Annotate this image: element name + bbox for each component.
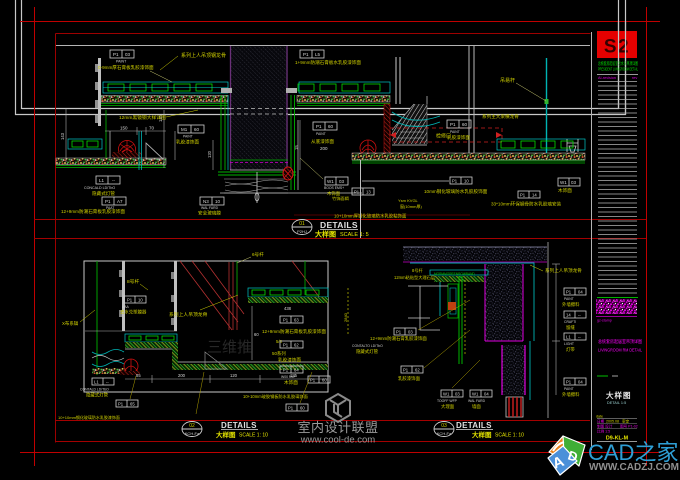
svg-text:gz-stamp: gz-stamp: [597, 319, 612, 323]
svg-text:P1: P1: [316, 124, 322, 129]
svg-text:1+9mm防潮石膏板水乳胶漆饰面: 1+9mm防潮石膏板水乳胶漆饰面: [295, 59, 361, 66]
svg-text:04: 04: [578, 380, 583, 385]
svg-text:A7: A7: [117, 199, 123, 204]
svg-text:438: 438: [284, 306, 292, 311]
svg-text:--: --: [112, 178, 115, 183]
svg-text:WAL FARD: WAL FARD: [201, 206, 219, 210]
svg-text:BOOS EMS+: BOOS EMS+: [324, 186, 344, 190]
svg-text:S2: S2: [604, 37, 630, 58]
svg-text:大样图: 大样图: [606, 390, 632, 400]
svg-text:竹饰面辑: 竹饰面辑: [332, 195, 349, 202]
svg-text:墙面: 墙面: [472, 403, 481, 410]
svg-text:TOOFF WFP: TOOFF WFP: [437, 399, 458, 403]
svg-text:03: 03: [441, 423, 447, 429]
svg-text:DETAILS: DETAILS: [320, 220, 358, 230]
svg-text:DETAILS: DETAILS: [221, 421, 257, 430]
svg-text:04: 04: [484, 392, 489, 397]
svg-text:CONTALTO LD/TbO: CONTALTO LD/TbO: [352, 344, 383, 348]
svg-text:04: 04: [578, 290, 583, 295]
svg-text:窗(10mm厚): 窗(10mm厚): [400, 203, 422, 209]
svg-text:审定: 审定: [622, 419, 630, 424]
svg-text:03: 03: [125, 52, 131, 57]
svg-text:W00 Rw+: W00 Rw+: [281, 375, 296, 379]
svg-text:AAA: AAA: [122, 305, 130, 309]
svg-text:从底漆饰面: 从底漆饰面: [311, 138, 334, 145]
svg-text:2840: 2840: [343, 312, 348, 322]
svg-text:64: 64: [294, 368, 299, 373]
svg-text:10+10mm玻胶钢板防水乳胶璃饰面: 10+10mm玻胶钢板防水乳胶璃饰面: [243, 393, 308, 400]
svg-text:60: 60: [462, 122, 468, 127]
svg-text:5/8: 5/8: [276, 339, 282, 344]
svg-text:PAINT: PAINT: [316, 132, 326, 136]
svg-text:总统套房起居室吊顶详图: 总统套房起居室吊顶详图: [598, 338, 642, 345]
svg-text:X布系辑: X布系辑: [62, 320, 79, 327]
svg-text:60: 60: [300, 406, 305, 411]
svg-text:2005.08: 2005.08: [606, 420, 619, 424]
svg-text:P1: P1: [354, 190, 360, 195]
svg-text:63: 63: [294, 318, 299, 323]
svg-text:图号 P1-02: 图号 P1-02: [620, 424, 638, 429]
svg-text:外墙擦料: 外墙擦料: [562, 391, 580, 398]
svg-text:室内设计联盟: 室内设计联盟: [297, 420, 378, 435]
svg-text:比例 1:5: 比例 1:5: [597, 429, 610, 434]
svg-text:M1: M1: [181, 127, 188, 132]
svg-text:60: 60: [328, 124, 334, 129]
svg-text:PAINT: PAINT: [183, 135, 193, 139]
svg-text:85: 85: [136, 373, 141, 378]
svg-text:大样图: 大样图: [216, 430, 236, 439]
svg-text:留缝: 留缝: [566, 324, 575, 331]
svg-text:P1: P1: [283, 343, 289, 348]
svg-text:10+10mm钢化玻璃防水乳胶漆饰面: 10+10mm钢化玻璃防水乳胶漆饰面: [58, 414, 120, 420]
svg-text:P1: P1: [127, 298, 133, 303]
svg-text:KCH-Fa: KCH-Fa: [185, 431, 200, 436]
svg-text:大样图: 大样图: [315, 230, 336, 239]
svg-text:大理面: 大理面: [441, 403, 455, 410]
svg-text:日期: 日期: [597, 419, 605, 424]
svg-text:8号杆: 8号杆: [127, 278, 139, 285]
svg-text:KCH-Fa: KCH-Fa: [437, 431, 452, 436]
svg-text:Ysm KVGL: Ysm KVGL: [398, 198, 419, 203]
svg-text:62: 62: [415, 368, 420, 373]
svg-text:系列上人吊顶龙骨: 系列上人吊顶龙骨: [169, 311, 208, 318]
svg-text:系列上人吊顶龙骨: 系列上人吊顶龙骨: [545, 267, 582, 274]
svg-text:去水兑塑膜器: 去水兑塑膜器: [120, 309, 147, 316]
svg-text:木饰面: 木饰面: [284, 379, 298, 386]
svg-text:LIVINGROOM RM DETAIL: LIVINGROOM RM DETAIL: [598, 348, 643, 353]
svg-text:W1: W1: [560, 180, 567, 185]
svg-text:10: 10: [215, 199, 221, 204]
svg-text:N3: N3: [203, 199, 209, 204]
svg-text:03: 03: [408, 330, 413, 335]
svg-text:检修口: 检修口: [436, 133, 451, 140]
svg-text:P1: P1: [450, 122, 456, 127]
svg-text:12+9mm防潮石膏板乳胶漆饰面: 12+9mm防潮石膏板乳胶漆饰面: [61, 208, 125, 215]
svg-text:6号杆: 6号杆: [252, 251, 264, 258]
svg-text:15: 15: [294, 145, 299, 150]
svg-text:P1: P1: [452, 179, 458, 184]
svg-text:P1: P1: [118, 402, 124, 407]
svg-text:P1: P1: [566, 380, 572, 385]
svg-text:L5: L5: [315, 52, 321, 57]
svg-text:8号杆: 8号杆: [412, 267, 424, 274]
svg-text:date: date: [596, 415, 603, 419]
svg-text:0-9mm厚石膏板乳胶漆饰面: 0-9mm厚石膏板乳胶漆饰面: [98, 64, 154, 71]
svg-text:13: 13: [366, 190, 371, 195]
svg-text:143: 143: [60, 132, 65, 140]
svg-text:14: 14: [532, 193, 537, 198]
svg-text:33*10mm环保钢骨防水乳胶璃安装: 33*10mm环保钢骨防水乳胶璃安装: [491, 201, 562, 208]
svg-text:12+9mm防潮石膏板乳胶漆饰面: 12+9mm防潮石膏板乳胶漆饰面: [262, 328, 326, 335]
svg-text:L1: L1: [99, 178, 105, 183]
svg-text:W1: W1: [327, 179, 334, 184]
svg-text:70: 70: [149, 126, 155, 131]
svg-text:10: 10: [464, 179, 469, 184]
svg-text:120: 120: [230, 373, 238, 378]
svg-text:200: 200: [320, 146, 328, 151]
svg-text:系列上人吊顶钢龙骨: 系列上人吊顶钢龙骨: [181, 52, 226, 59]
svg-text:DETAILS: DETAILS: [456, 421, 492, 430]
svg-text:P1: P1: [303, 52, 309, 57]
svg-text:10mm钢化玻璃防水乳胶胶饰面: 10mm钢化玻璃防水乳胶胶饰面: [424, 188, 488, 195]
svg-text:WAL FARD: WAL FARD: [468, 399, 486, 403]
svg-text:P1: P1: [105, 199, 111, 204]
svg-text:P1: P1: [310, 378, 316, 383]
svg-text:SCALE 1: 5: SCALE 1: 5: [340, 232, 369, 238]
svg-text:03: 03: [571, 180, 577, 185]
svg-text:12+9mm防潮石膏乳胶漆饰面: 12+9mm防潮石膏乳胶漆饰面: [370, 335, 427, 342]
svg-text:木饰面: 木饰面: [558, 187, 572, 194]
svg-text:MORMMGREENROWBAND: MORMMGREENROWBAND: [434, 272, 475, 276]
svg-text:PAINT: PAINT: [116, 60, 127, 64]
svg-text:PAINT: PAINT: [564, 387, 574, 391]
svg-text:PAINT: PAINT: [564, 297, 574, 301]
svg-text:PRESIDENT LIVINGROOM DETAIL: PRESIDENT LIVINGROOM DETAIL: [598, 67, 638, 72]
svg-text:P1: P1: [283, 318, 289, 323]
svg-text:安全玻璃膜: 安全玻璃膜: [198, 210, 221, 217]
svg-text:系列主大梁横龙骨: 系列主大梁横龙骨: [482, 113, 519, 120]
svg-text:三维推: 三维推: [207, 339, 252, 356]
svg-text:外墙擦料: 外墙擦料: [562, 301, 580, 308]
svg-text:rev: rev: [632, 76, 637, 80]
svg-text:03: 03: [339, 179, 345, 184]
svg-text:P2HJ: P2HJ: [297, 229, 307, 234]
svg-text:P1: P1: [566, 290, 572, 295]
svg-text:P1: P1: [113, 52, 119, 57]
svg-text:灯带: 灯带: [566, 346, 575, 353]
svg-text:www.cool-de.com: www.cool-de.com: [300, 435, 376, 446]
svg-text:03: 03: [455, 392, 460, 397]
svg-text:200: 200: [178, 373, 186, 378]
svg-text:制图 设计: 制图 设计: [597, 424, 613, 429]
svg-text:SCALE 1: 10: SCALE 1: 10: [239, 433, 268, 439]
svg-text:02: 02: [189, 423, 195, 429]
svg-text:12mm粘贴型大理石层: 12mm粘贴型大理石层: [394, 274, 435, 281]
svg-text:乳胶漆饰面: 乳胶漆饰面: [278, 357, 301, 364]
svg-text:10: 10: [138, 298, 143, 303]
svg-text:吊易杆: 吊易杆: [500, 77, 515, 84]
svg-text:LIGHT: LIGHT: [564, 342, 574, 346]
svg-text:14: 14: [566, 313, 571, 318]
svg-text:SCALE 1: 10: SCALE 1: 10: [495, 433, 524, 439]
svg-text:150: 150: [120, 126, 128, 131]
svg-text:CONCALD LD/TbO: CONCALD LD/TbO: [84, 186, 115, 190]
svg-text:60: 60: [322, 378, 327, 383]
svg-text:P1: P1: [396, 330, 402, 335]
svg-text:DETAIL 1:5: DETAIL 1:5: [607, 401, 626, 405]
svg-text:120: 120: [207, 150, 212, 158]
svg-text:P1: P1: [283, 368, 289, 373]
svg-text:大样图: 大样图: [472, 430, 492, 439]
svg-text:PAINT: PAINT: [450, 130, 460, 134]
svg-text:L1: L1: [94, 380, 99, 385]
svg-text:10+10mm厚钢化玻璃防水乳胶粘饰面: 10+10mm厚钢化玻璃防水乳胶粘饰面: [334, 213, 407, 220]
svg-text:乳胶漆饰面: 乳胶漆饰面: [398, 375, 421, 382]
svg-text:P1: P1: [403, 368, 409, 373]
svg-text:CRAFTI: CRAFTI: [564, 320, 576, 324]
svg-text:隐藏式灯管: 隐藏式灯管: [86, 392, 109, 399]
svg-text:乳胶漆饰面: 乳胶漆饰面: [176, 139, 199, 146]
svg-text:P1: P1: [520, 193, 526, 198]
svg-text:60: 60: [194, 127, 200, 132]
svg-text:AI-revision: AI-revision: [598, 76, 616, 80]
svg-text:12mm黑镜钢大样详图: 12mm黑镜钢大样详图: [119, 114, 166, 121]
svg-text:01: 01: [299, 221, 305, 227]
svg-text:50系列: 50系列: [272, 350, 286, 357]
svg-text:60: 60: [254, 332, 259, 337]
svg-text:CONTALD LD/TbO: CONTALD LD/TbO: [80, 388, 109, 392]
svg-text:P1: P1: [288, 406, 294, 411]
svg-text:W1: W1: [472, 392, 479, 397]
svg-text:隐藏式灯管: 隐藏式灯管: [92, 190, 115, 197]
svg-text:隐藏式灯管: 隐藏式灯管: [356, 348, 379, 355]
svg-text:L1: L1: [566, 335, 571, 340]
svg-text:W1: W1: [443, 392, 450, 397]
svg-text:WWW.CADZJ.COM: WWW.CADZJ.COM: [589, 462, 679, 473]
svg-text:62: 62: [294, 343, 299, 348]
svg-text:65: 65: [130, 402, 135, 407]
